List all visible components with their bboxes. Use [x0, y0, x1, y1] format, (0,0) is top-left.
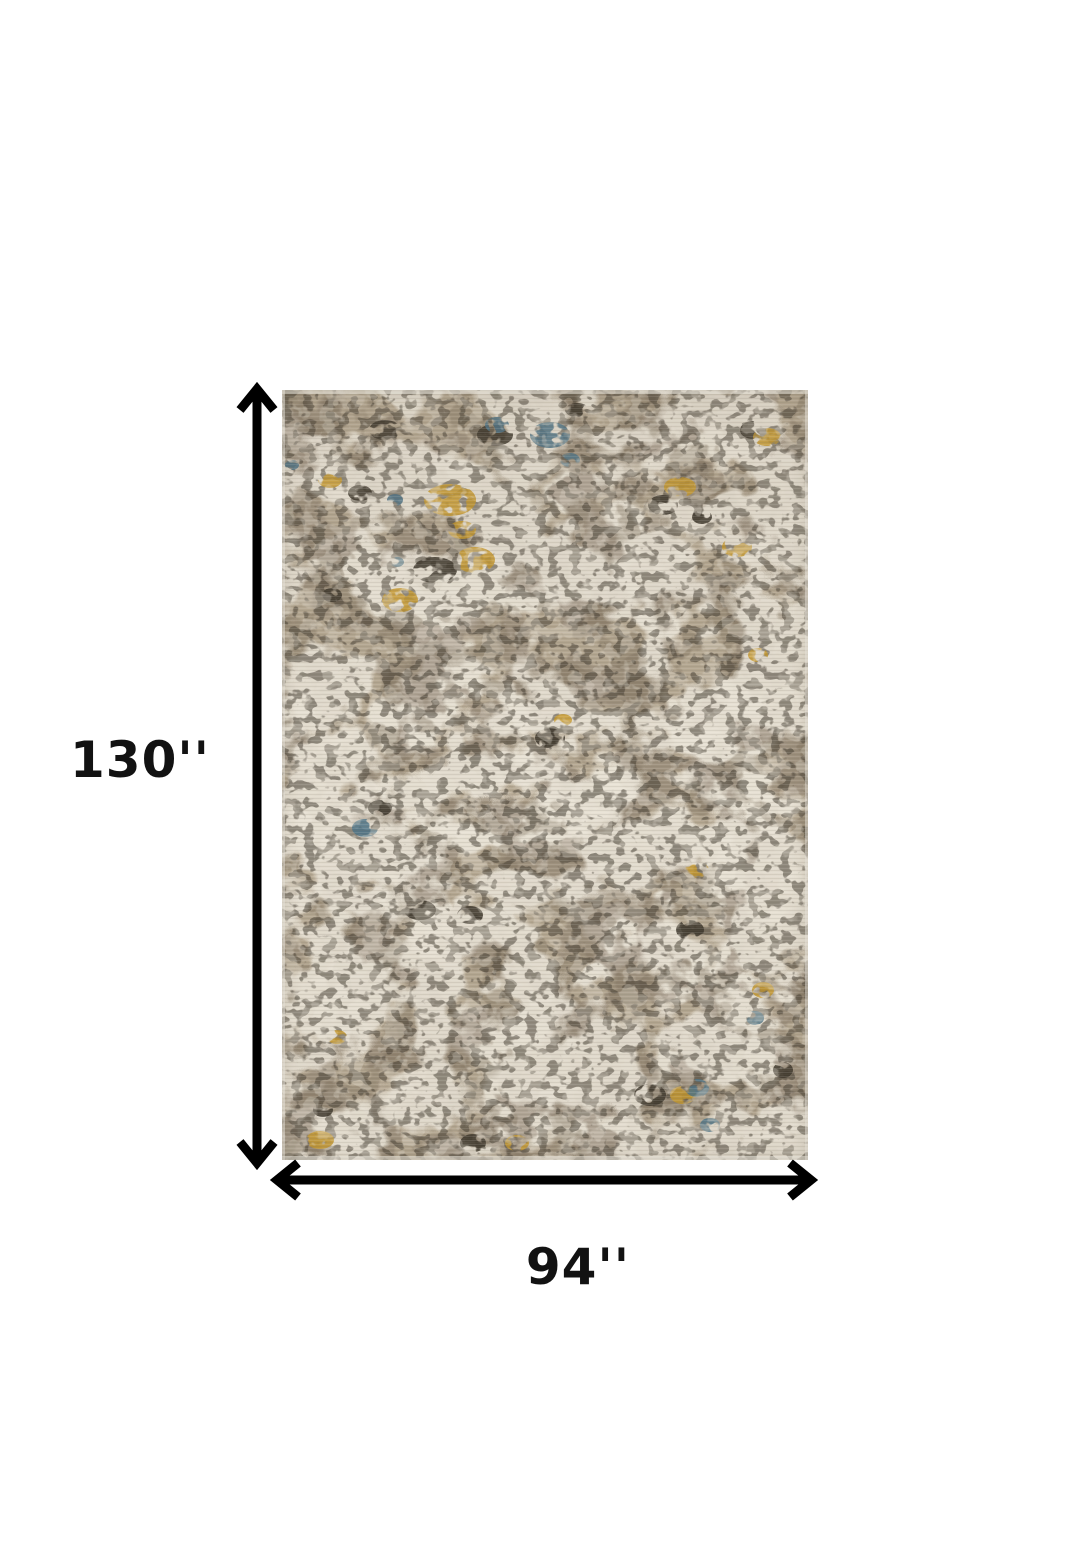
width-dimension-arrow — [266, 1156, 822, 1204]
height-dimension-arrow — [233, 380, 281, 1172]
width-dimension-label: 94'' — [490, 1242, 666, 1292]
product-dimension-diagram: 130'' 94'' — [0, 0, 1086, 1550]
height-arrow-strokes — [240, 389, 274, 1163]
width-arrow-strokes — [277, 1163, 811, 1197]
rug-finish-layers — [282, 390, 808, 1160]
rug-image — [282, 390, 808, 1160]
height-dimension-label: 130'' — [52, 735, 228, 785]
rug-texture — [282, 390, 808, 1160]
